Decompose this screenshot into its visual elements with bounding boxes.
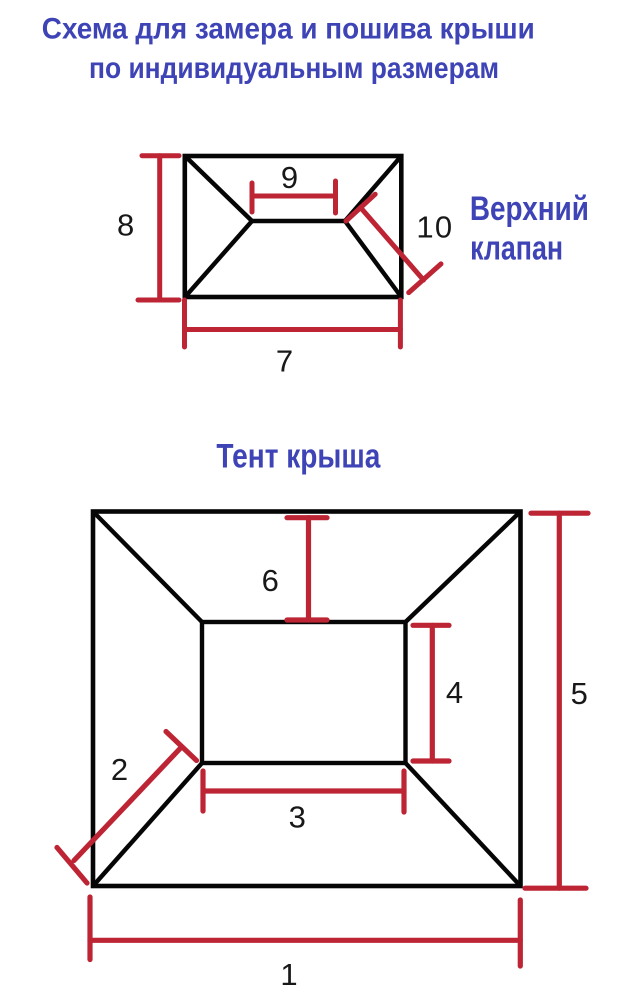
svg-text:1: 1 [280,957,297,992]
svg-text:9: 9 [281,160,298,195]
svg-text:3: 3 [289,800,306,835]
svg-text:Верхний: Верхний [470,190,589,228]
svg-text:по индивидуальным размерам: по индивидуальным размерам [89,52,499,85]
svg-text:5: 5 [571,676,588,711]
svg-text:4: 4 [446,675,463,710]
svg-text:8: 8 [117,208,134,243]
svg-text:6: 6 [262,563,279,598]
svg-text:2: 2 [111,752,128,787]
svg-text:Тент крыша: Тент крыша [216,437,381,475]
svg-text:клапан: клапан [470,230,563,268]
svg-text:7: 7 [276,343,293,378]
svg-text:1: 1 [416,210,433,245]
svg-text:Схема для замера и пошива крыш: Схема для замера и пошива крыши [42,13,535,46]
svg-text:0: 0 [435,210,452,245]
